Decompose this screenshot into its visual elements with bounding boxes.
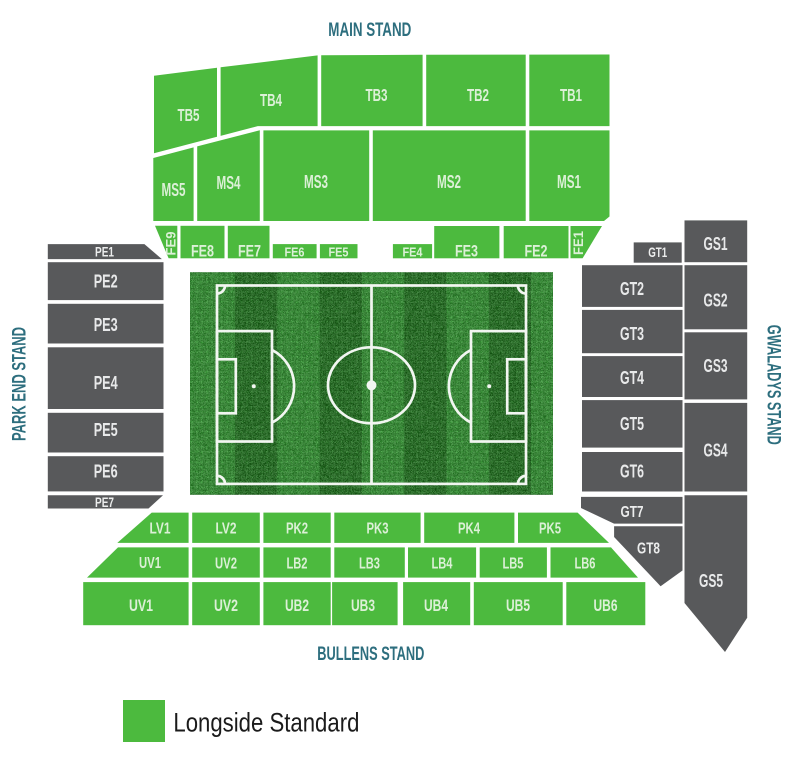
svg-text:FE5: FE5: [329, 244, 349, 259]
svg-text:LB6: LB6: [575, 556, 596, 573]
svg-text:FE9: FE9: [163, 231, 179, 255]
svg-text:GT6: GT6: [620, 461, 644, 482]
svg-text:TB4: TB4: [260, 90, 282, 110]
svg-text:LV2: LV2: [216, 521, 237, 538]
svg-text:TB1: TB1: [560, 85, 582, 105]
svg-text:PK5: PK5: [539, 521, 561, 538]
svg-text:GS2: GS2: [704, 290, 728, 311]
svg-text:MS1: MS1: [557, 171, 581, 192]
svg-text:UB2: UB2: [285, 596, 309, 615]
svg-text:PE2: PE2: [94, 271, 118, 292]
svg-text:GT1: GT1: [648, 245, 667, 260]
svg-text:GS5: GS5: [699, 570, 723, 591]
svg-text:FE6: FE6: [285, 244, 305, 259]
svg-text:GS3: GS3: [704, 355, 728, 376]
svg-text:FE2: FE2: [525, 242, 548, 260]
svg-text:FE8: FE8: [191, 242, 214, 260]
svg-text:MS2: MS2: [437, 171, 461, 192]
svg-text:BULLENS STAND: BULLENS STAND: [317, 643, 424, 665]
svg-text:UB4: UB4: [424, 596, 448, 615]
svg-text:Longside Standard: Longside Standard: [173, 708, 359, 738]
svg-text:TB5: TB5: [178, 105, 200, 125]
svg-text:UV1: UV1: [139, 555, 161, 572]
svg-text:UB5: UB5: [506, 596, 530, 615]
svg-text:GS1: GS1: [704, 233, 728, 254]
svg-text:PE3: PE3: [94, 314, 118, 335]
svg-text:GT2: GT2: [620, 278, 644, 299]
svg-text:MS4: MS4: [217, 172, 241, 193]
svg-text:FE1: FE1: [570, 231, 586, 255]
svg-text:LV1: LV1: [150, 521, 171, 538]
svg-text:LB2: LB2: [287, 556, 308, 573]
svg-text:LB5: LB5: [503, 556, 524, 573]
svg-text:FE3: FE3: [455, 242, 478, 260]
svg-text:GWALADYS STAND: GWALADYS STAND: [763, 325, 784, 445]
svg-text:TB3: TB3: [366, 85, 388, 105]
svg-text:MAIN STAND: MAIN STAND: [328, 19, 411, 41]
svg-text:PE1: PE1: [95, 245, 114, 260]
svg-text:UV1: UV1: [129, 596, 153, 615]
svg-text:GS4: GS4: [704, 440, 728, 461]
svg-text:GT3: GT3: [620, 323, 644, 344]
svg-text:PE7: PE7: [95, 495, 114, 510]
svg-text:UV2: UV2: [215, 556, 237, 573]
svg-text:MS5: MS5: [162, 179, 186, 200]
svg-text:UB3: UB3: [351, 596, 375, 615]
svg-text:LB3: LB3: [359, 556, 380, 573]
svg-text:PE5: PE5: [94, 419, 118, 440]
svg-text:PK2: PK2: [286, 521, 308, 538]
svg-text:GT5: GT5: [620, 413, 644, 434]
svg-text:FE7: FE7: [238, 242, 261, 260]
svg-text:UV2: UV2: [214, 596, 238, 615]
svg-text:GT7: GT7: [621, 504, 644, 521]
svg-text:FE4: FE4: [403, 244, 424, 259]
svg-text:PK3: PK3: [367, 521, 389, 538]
svg-text:TB2: TB2: [467, 85, 489, 105]
svg-text:PARK END STAND: PARK END STAND: [10, 327, 31, 441]
svg-text:GT4: GT4: [620, 367, 644, 388]
svg-text:MS3: MS3: [304, 171, 328, 192]
svg-text:GT8: GT8: [637, 541, 660, 558]
svg-text:UB6: UB6: [594, 596, 618, 615]
svg-text:PE4: PE4: [94, 372, 118, 393]
svg-text:LB4: LB4: [432, 556, 453, 573]
svg-text:PE6: PE6: [94, 461, 118, 482]
svg-text:PK4: PK4: [458, 521, 480, 538]
